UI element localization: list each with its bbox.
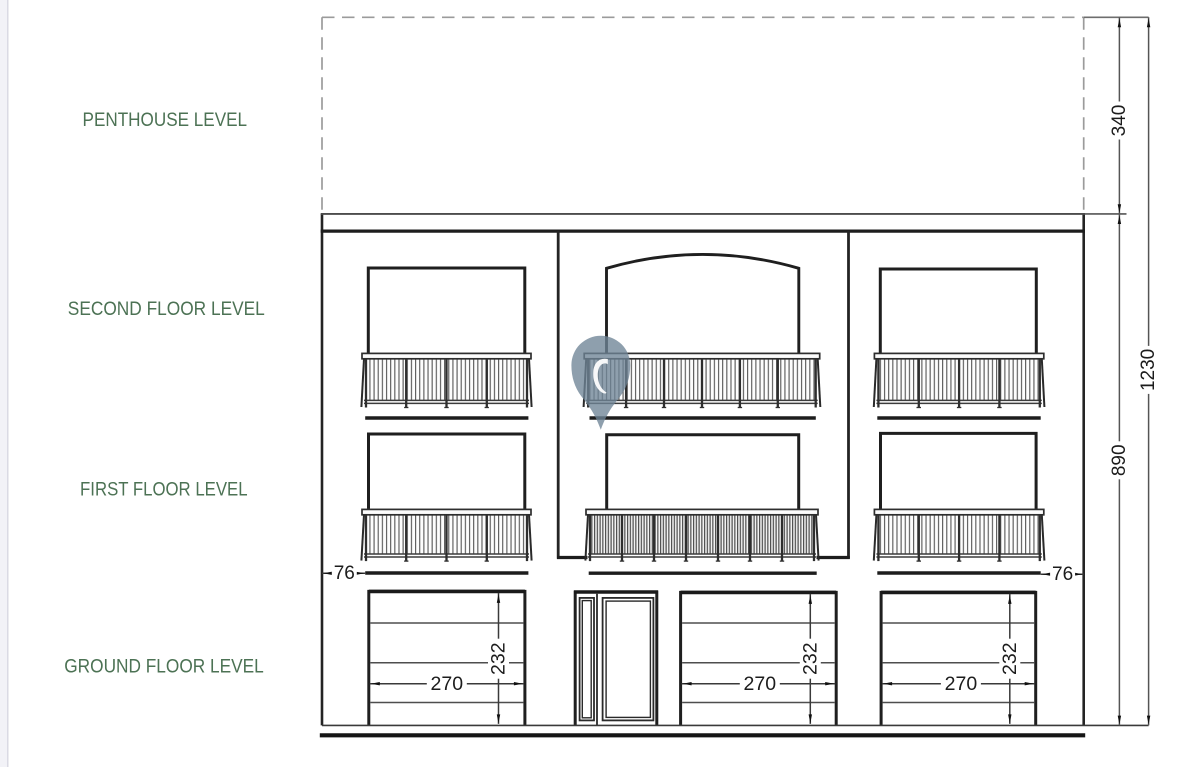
svg-text:270: 270: [744, 673, 777, 695]
svg-text:PENTHOUSE LEVEL: PENTHOUSE LEVEL: [83, 110, 248, 131]
svg-text:890: 890: [1109, 444, 1130, 476]
svg-text:270: 270: [945, 673, 978, 695]
svg-text:340: 340: [1109, 105, 1130, 137]
svg-text:232: 232: [488, 642, 510, 675]
svg-text:76: 76: [334, 563, 355, 584]
svg-text:1230: 1230: [1138, 349, 1159, 391]
svg-text:232: 232: [999, 642, 1021, 675]
svg-text:GROUND FLOOR LEVEL: GROUND FLOOR LEVEL: [64, 656, 264, 677]
svg-text:FIRST FLOOR LEVEL: FIRST FLOOR LEVEL: [80, 479, 248, 500]
svg-text:270: 270: [431, 673, 464, 695]
svg-text:76: 76: [1052, 564, 1073, 585]
svg-text:232: 232: [799, 642, 821, 675]
svg-text:SECOND FLOOR LEVEL: SECOND FLOOR LEVEL: [68, 299, 265, 320]
